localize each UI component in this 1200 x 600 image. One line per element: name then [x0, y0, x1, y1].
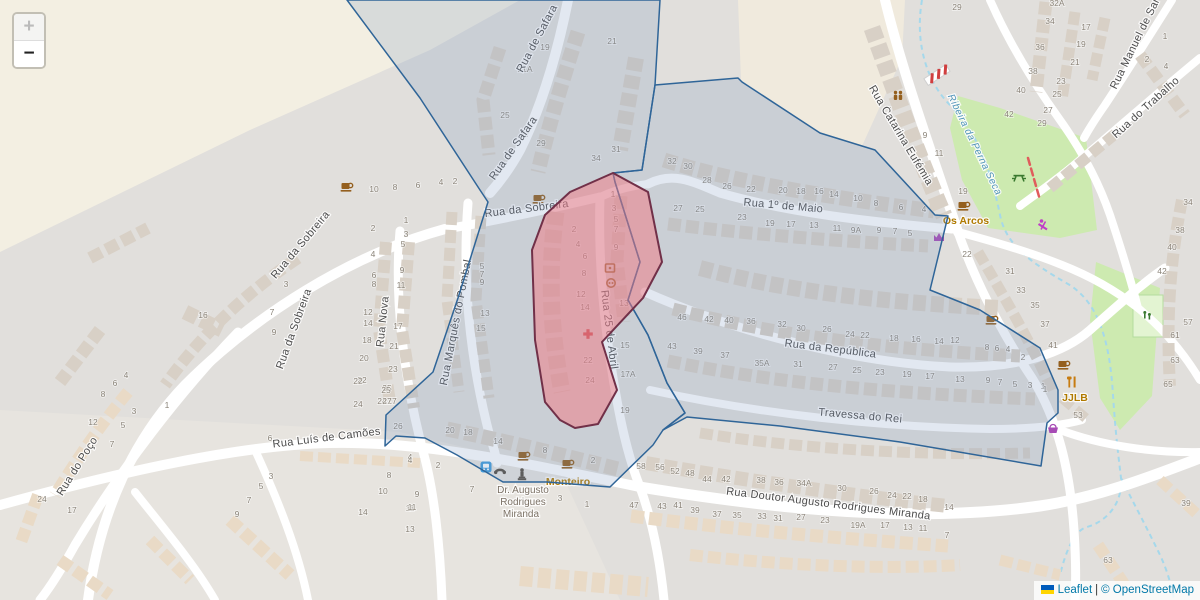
people-part — [894, 95, 897, 100]
house-number: 29 — [1037, 118, 1047, 128]
house-number: 4 — [124, 370, 129, 380]
house-number: 4 — [371, 249, 376, 259]
map-tiles: 211921A252729343110864213591117212325272… — [0, 0, 1200, 600]
house-number: 14 — [363, 318, 373, 328]
basket-part — [1048, 428, 1058, 434]
house-number: 22 — [902, 491, 912, 501]
house-number: 6 — [113, 378, 118, 388]
house-number: 1 — [585, 499, 590, 509]
attribution-separator: | — [1095, 584, 1098, 596]
house-number: 5 — [401, 239, 406, 249]
house-number: 38 — [756, 475, 766, 485]
house-number: 19A — [850, 520, 865, 530]
house-number: 23 — [1056, 76, 1066, 86]
house-number: 27 — [382, 396, 392, 406]
house-number: 4 — [439, 177, 444, 187]
osm-link[interactable]: © OpenStreetMap — [1101, 584, 1194, 596]
house-number: 25 — [1052, 89, 1062, 99]
cup-part — [341, 190, 352, 192]
picnic-part — [1014, 175, 1025, 177]
house-number: 3 — [132, 406, 137, 416]
house-number: 11 — [397, 280, 406, 290]
house-number: 8 — [393, 182, 398, 192]
house-number: 17 — [67, 505, 77, 515]
house-number: 39 — [1181, 498, 1191, 508]
house-number: 35 — [732, 510, 742, 520]
people-part — [899, 95, 902, 100]
house-number: 12 — [88, 417, 98, 427]
house-number: 33 — [757, 511, 767, 521]
house-number: 47 — [629, 500, 639, 510]
house-number: 11 — [919, 523, 928, 533]
house-number: 6 — [416, 180, 421, 190]
house-number: 14 — [358, 507, 368, 517]
house-number: 30 — [837, 483, 847, 493]
house-number: 2 — [371, 223, 376, 233]
house-number: 39 — [690, 505, 700, 515]
playground-part — [1148, 313, 1151, 316]
house-number: 41 — [673, 500, 683, 510]
house-number: 7 — [247, 495, 252, 505]
house-number: 9 — [400, 265, 405, 275]
house-number: 8 — [387, 470, 392, 480]
house-number: 1 — [404, 215, 409, 225]
house-number: 65 — [1163, 379, 1173, 389]
house-number: 13 — [405, 524, 415, 534]
house-number: 32A — [1049, 0, 1064, 8]
house-number: 34A — [796, 478, 811, 488]
house-number: 11 — [408, 502, 417, 512]
zoom-control: + − — [12, 12, 46, 69]
house-number: 31 — [1005, 266, 1015, 276]
zoom-in-button[interactable]: + — [14, 14, 44, 41]
house-number: 21 — [1070, 57, 1080, 67]
house-number: 7 — [470, 484, 475, 494]
house-number: 2 — [436, 460, 441, 470]
house-number: 18 — [918, 494, 928, 504]
house-number: 44 — [702, 474, 712, 484]
house-number: 24 — [37, 494, 47, 504]
house-number: 8 — [372, 279, 377, 289]
house-number: 2 — [453, 176, 458, 186]
house-number: 14 — [944, 502, 954, 512]
house-number: 57 — [1183, 317, 1193, 327]
house-number: 20 — [359, 353, 369, 363]
ukraine-flag-icon — [1041, 585, 1054, 594]
slide-part — [1040, 219, 1044, 223]
people-part — [899, 91, 902, 94]
house-number: 35 — [1030, 300, 1040, 310]
house-number: 42 — [1157, 266, 1167, 276]
house-number: 27 — [1043, 105, 1053, 115]
house-number: 34 — [1183, 197, 1193, 207]
house-number: 19 — [1076, 39, 1086, 49]
house-number: 40 — [1167, 242, 1177, 252]
leaflet-link[interactable]: Leaflet — [1058, 584, 1093, 596]
cup-part — [958, 209, 969, 211]
house-number: 11 — [935, 148, 944, 158]
poi-name-label: Os Arcos — [943, 215, 989, 227]
house-number: 17 — [1081, 22, 1091, 32]
picnic-part — [1023, 178, 1026, 179]
house-number: 9 — [272, 327, 277, 337]
fork-part — [1067, 377, 1072, 380]
house-number: 2 — [1145, 54, 1150, 64]
attribution-bar: Leaflet|© OpenStreetMap — [1034, 581, 1200, 600]
house-number: 10 — [369, 184, 379, 194]
house-number: 12 — [363, 307, 373, 317]
house-number: 56 — [655, 462, 665, 472]
house-number: 41 — [1048, 340, 1058, 350]
house-number: 7 — [270, 307, 275, 317]
fork-part — [1074, 377, 1076, 388]
house-number: 9 — [415, 489, 420, 499]
people-part — [894, 91, 897, 94]
house-number: 3 — [269, 471, 274, 481]
place-name-label: Miranda — [503, 509, 540, 520]
house-number: 13 — [903, 522, 913, 532]
house-number: 33 — [1016, 285, 1026, 295]
house-number: 7 — [945, 530, 950, 540]
poi-name-label: JJLB — [1062, 392, 1088, 404]
house-number: 1 — [165, 400, 170, 410]
house-number: 27 — [796, 512, 806, 522]
house-number: 24 — [353, 399, 363, 409]
house-number: 16 — [198, 310, 208, 320]
house-number: 38 — [1175, 225, 1185, 235]
house-number: 29 — [952, 2, 962, 12]
house-number: 31 — [773, 513, 783, 523]
place-name-label: Dr. Augusto — [497, 485, 549, 496]
house-number: 8 — [101, 389, 106, 399]
map-canvas[interactable]: 211921A252729343110864213591117212325272… — [0, 0, 1200, 600]
house-number: 10 — [378, 486, 388, 496]
house-number: 3 — [404, 229, 409, 239]
house-number: 5 — [259, 481, 264, 491]
house-number: 4 — [1164, 61, 1169, 71]
house-number: 7 — [110, 439, 115, 449]
house-number: 37 — [712, 509, 722, 519]
house-number: 48 — [685, 468, 695, 478]
house-number: 21 — [389, 341, 399, 351]
zoom-out-button[interactable]: − — [14, 41, 44, 67]
picnic-part — [1012, 178, 1015, 179]
house-number: 37 — [1040, 319, 1050, 329]
house-number: 23 — [820, 515, 830, 525]
house-number: 52 — [670, 466, 680, 476]
house-number: 22 — [962, 249, 972, 259]
house-number: 26 — [869, 486, 879, 496]
house-number: 19 — [958, 186, 968, 196]
house-number: 4 — [408, 455, 413, 465]
house-number: 43 — [657, 501, 667, 511]
house-number: 9 — [923, 130, 928, 140]
house-number: 63 — [1170, 355, 1180, 365]
house-number: 24 — [887, 490, 897, 500]
building-row — [300, 456, 420, 463]
house-number: 25 — [381, 385, 391, 395]
house-number: 1 — [1163, 31, 1168, 41]
house-number: 53 — [1073, 410, 1083, 420]
house-number: 5 — [121, 420, 126, 430]
house-number: 17 — [880, 520, 890, 530]
house-number: 36 — [774, 477, 784, 487]
house-number: 63 — [1103, 555, 1113, 565]
cup-part — [1058, 368, 1069, 370]
house-number: 42 — [1004, 109, 1014, 119]
house-number: 40 — [1016, 85, 1026, 95]
place-name-label: Rodrigues — [500, 497, 546, 508]
house-number: 61 — [1170, 330, 1180, 340]
house-number: 42 — [721, 474, 731, 484]
house-number: 22 — [353, 376, 363, 386]
house-number: 9 — [235, 509, 240, 519]
house-number: 23 — [388, 364, 398, 374]
building-row — [520, 576, 648, 587]
house-number: 34 — [1045, 16, 1055, 26]
house-number: 3 — [284, 279, 289, 289]
house-number: 36 — [1035, 42, 1045, 52]
house-number: 58 — [636, 461, 646, 471]
house-number: 38 — [1028, 66, 1038, 76]
house-number: 17 — [393, 321, 403, 331]
house-number: 18 — [362, 335, 372, 345]
playground-part — [1143, 311, 1146, 314]
house-number: 3 — [558, 493, 563, 503]
